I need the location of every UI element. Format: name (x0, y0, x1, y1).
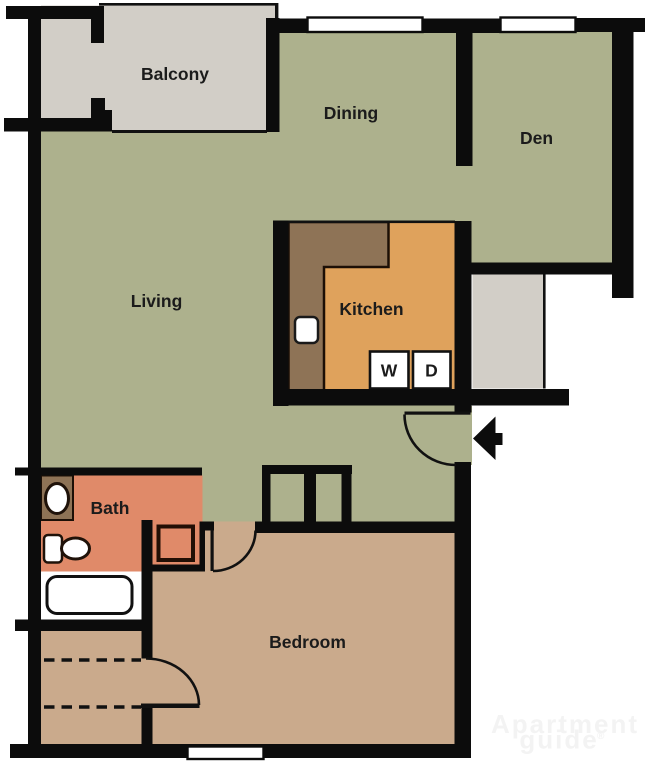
svg-text:guide: guide (519, 725, 598, 755)
svg-text:Kitchen: Kitchen (339, 299, 403, 319)
svg-text:Balcony: Balcony (141, 64, 209, 84)
svg-text:Bath: Bath (91, 498, 130, 518)
svg-text:D: D (425, 361, 438, 381)
svg-text:Bedroom: Bedroom (269, 632, 346, 652)
svg-text:Den: Den (520, 128, 553, 148)
svg-text:®: ® (597, 731, 605, 742)
svg-text:Dining: Dining (324, 103, 378, 123)
svg-text:Living: Living (131, 291, 183, 311)
svg-text:W: W (381, 361, 398, 381)
